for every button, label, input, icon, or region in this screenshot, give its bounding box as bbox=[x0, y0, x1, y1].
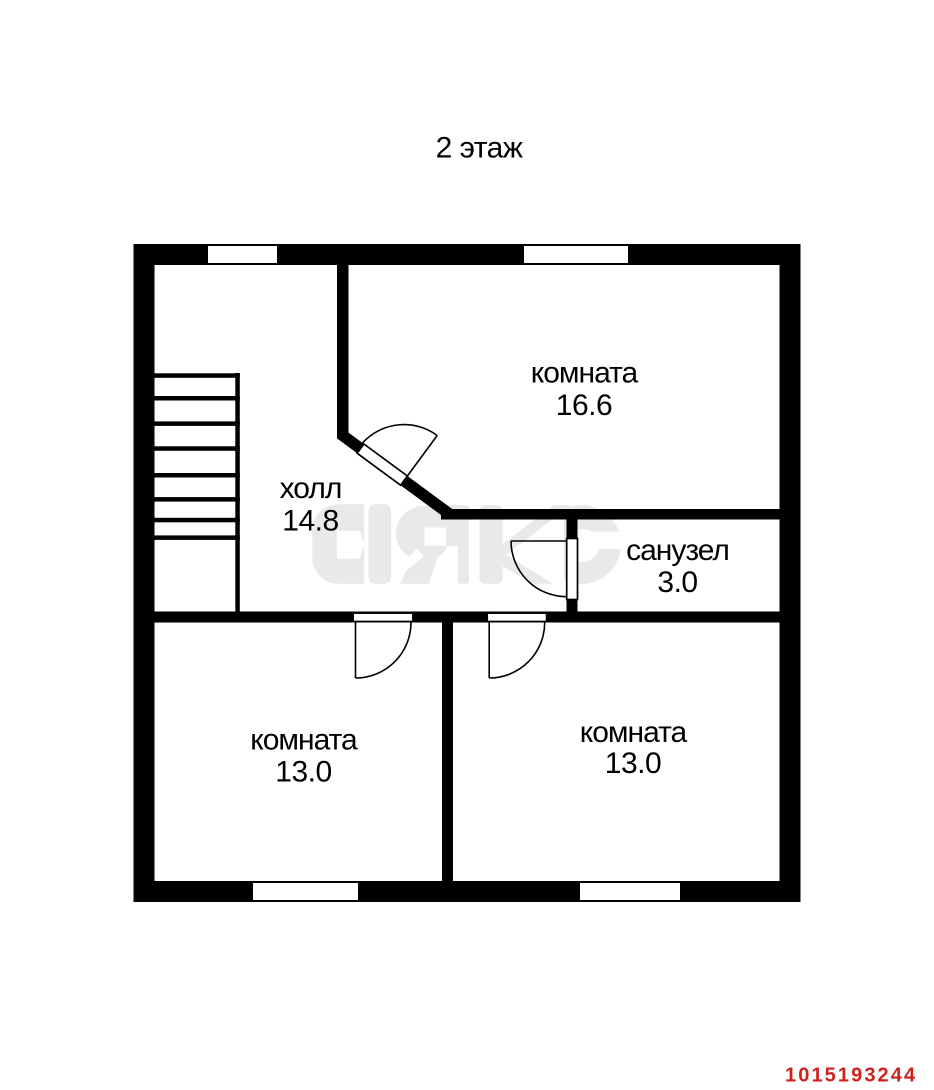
svg-text:комната: комната bbox=[580, 716, 688, 749]
svg-text:1015193244: 1015193244 bbox=[785, 1065, 917, 1087]
svg-text:2 этаж: 2 этаж bbox=[436, 132, 523, 165]
svg-text:3.0: 3.0 bbox=[657, 566, 697, 599]
svg-text:санузел: санузел bbox=[626, 534, 729, 567]
svg-text:комната: комната bbox=[250, 724, 358, 757]
svg-text:16.6: 16.6 bbox=[556, 389, 612, 422]
svg-text:13.0: 13.0 bbox=[275, 755, 331, 788]
svg-text:комната: комната bbox=[531, 356, 639, 389]
svg-text:холл: холл bbox=[280, 472, 342, 505]
svg-text:14.8: 14.8 bbox=[282, 505, 338, 538]
svg-text:13.0: 13.0 bbox=[605, 747, 661, 780]
